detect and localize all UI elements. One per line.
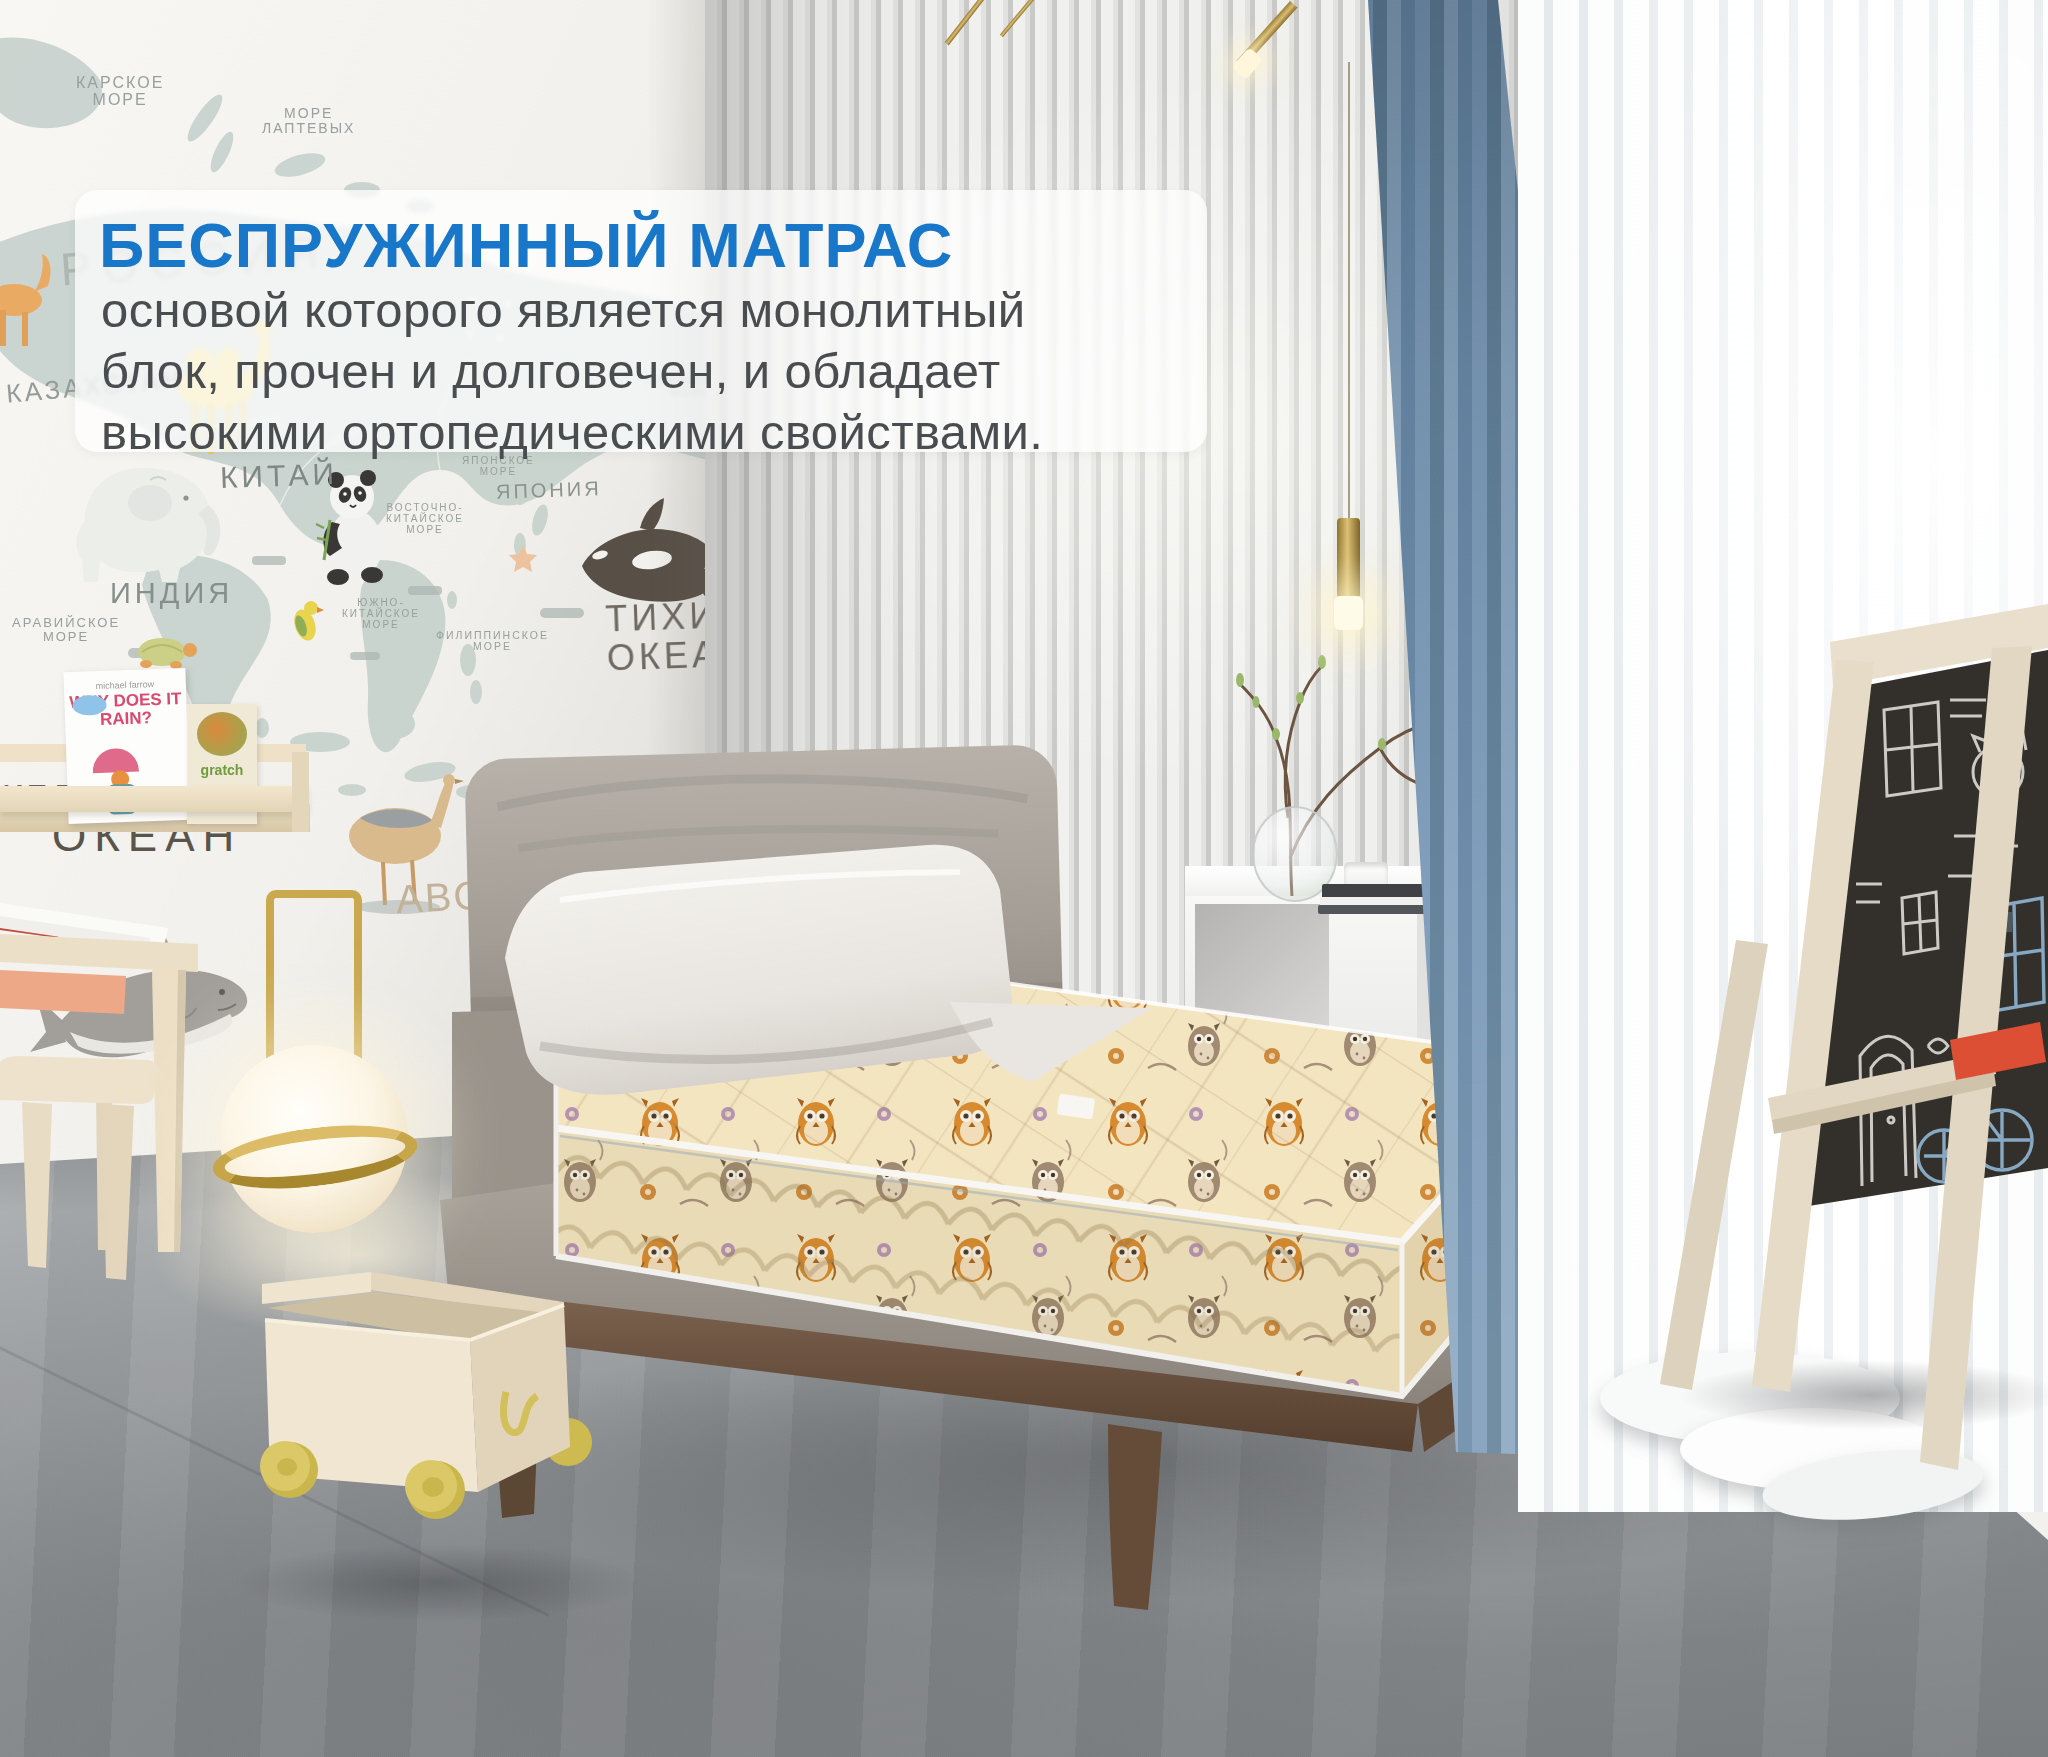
kids-room-product-photo: КАРСКОЕ МОРЕ МОРЕ ЛАПТЕВЫХ РОССИЯ КАЗАХС…: [0, 0, 2048, 1757]
panel-title: БЕСПРУЖИННЫЙ МАТРАС: [99, 214, 1207, 277]
panel-line-2: блок, прочен и долговечен, и обладает: [101, 343, 1207, 399]
marketing-text-panel: БЕСПРУЖИННЫЙ МАТРАС основой которого явл…: [75, 190, 1207, 452]
panel-line-3: высокими ортопедическими свойствами.: [101, 404, 1207, 460]
panel-line-1: основой которого является монолитный: [101, 282, 1207, 338]
